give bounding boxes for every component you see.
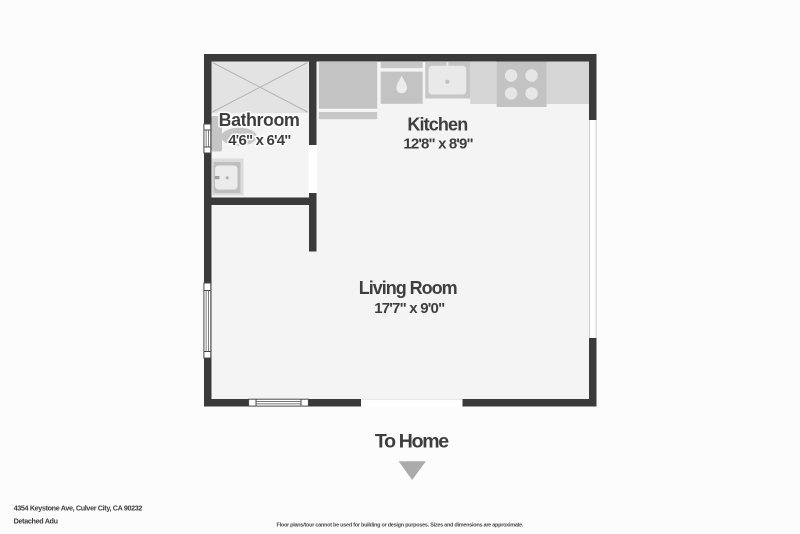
svg-text:12'8" x 8'9": 12'8" x 8'9": [403, 136, 473, 153]
svg-text:Bathroom: Bathroom: [219, 110, 300, 130]
svg-text:To Home: To Home: [375, 430, 449, 452]
svg-text:4354 Keystone Ave, Culver City: 4354 Keystone Ave, Culver City, CA 90232: [14, 503, 143, 512]
svg-text:Kitchen: Kitchen: [407, 114, 468, 134]
svg-text:Living Room: Living Room: [359, 278, 458, 298]
svg-text:17'7" x 9'0": 17'7" x 9'0": [374, 300, 445, 317]
svg-text:Floor plans/tour cannot be use: Floor plans/tour cannot be used for buil…: [277, 522, 524, 528]
svg-text:4'6" x 6'4": 4'6" x 6'4": [228, 132, 291, 149]
svg-text:Detached Adu: Detached Adu: [14, 516, 58, 525]
